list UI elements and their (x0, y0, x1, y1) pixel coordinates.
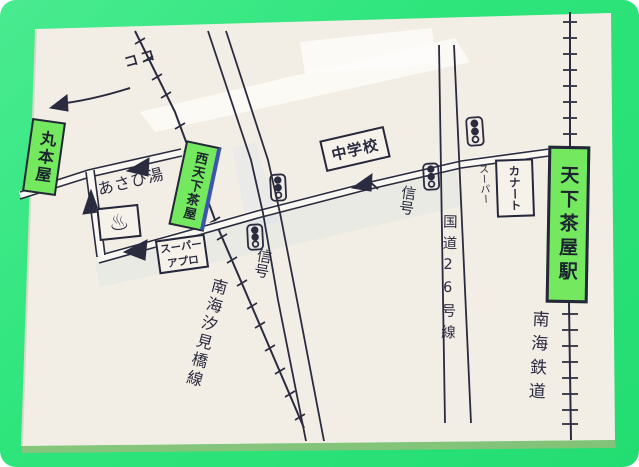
asahiyu-box: ♨ (96, 204, 141, 241)
super-apro-box: スーパー アプロ (155, 234, 209, 275)
marumotoya-label: 丸本屋 (28, 129, 59, 186)
map-photo: 丸本屋 西天下茶屋 天下茶屋駅 中学校 カナート スーパー スーパー アプロ ♨… (0, 0, 639, 467)
kanato-label: カナート (506, 165, 524, 212)
route26-label: 国道26号線 (439, 214, 456, 382)
onsen-icon: ♨ (107, 208, 130, 236)
tengachaya-station-box: 天下茶屋駅 (546, 146, 591, 304)
kanato-box: カナート (495, 158, 535, 217)
nishi-tengachaya-label: 西天下茶屋 (177, 150, 210, 222)
super-apro-line2: アプロ (166, 252, 199, 271)
tengachaya-station-label: 天下茶屋駅 (553, 164, 582, 284)
junior-high-label: 中学校 (329, 133, 381, 164)
